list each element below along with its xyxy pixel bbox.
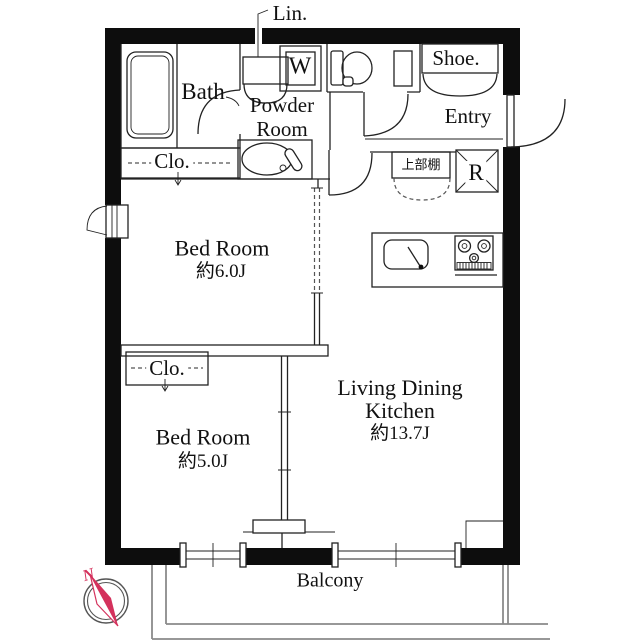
shelf-door-left [394,178,422,200]
shoe-door-right [460,74,497,96]
shelf-door-right [422,178,450,200]
bedroom1-label: Bed Room [175,236,270,259]
toilet-door-arc [364,94,408,136]
hall-door-arc [329,153,372,195]
bedroom2-corner-wall [253,520,305,533]
counter-outline [372,233,503,287]
wall-left-upper [105,28,121,205]
stove-burner-3-center [472,256,476,260]
floor-plan: Lin. Bath Powder Room W Shoe. Entry 上部棚 … [0,0,640,640]
kitchen-counter [372,233,503,287]
stove-grill-hatch [460,263,487,270]
window1-cap-left [180,543,186,567]
bottom-windows [180,521,503,567]
toilet-room [327,44,420,136]
bedroom1-bottom-wall [121,345,328,356]
ldk-label: Living Dining Kitchen [315,376,485,422]
stove-burner-1 [459,240,471,252]
bath-label: Bath [181,80,224,104]
stove-burner-2 [478,240,490,252]
balcony-right-rail [503,565,508,624]
bedroom1-size: 約6.0J [196,262,246,282]
vanity-counter [238,140,312,179]
washer-label: W [289,54,312,79]
wall-bottom-middle [243,548,335,565]
wall-right-upper [503,28,520,95]
entry-label: Entry [445,105,492,127]
leader-wall-slot [255,28,262,45]
stove-burner-1-center [462,244,467,249]
sink-faucet-head [419,265,424,270]
bedroom2-label: Bed Room [156,425,251,448]
linen-label: Lin. [273,2,307,24]
bedroom1-window-swing [87,206,107,235]
wall-top [105,28,520,44]
sliding-door-2-ticks [278,356,291,470]
sink-faucet [408,247,420,266]
bathtub-inner [131,56,169,134]
sliding-door-1-track [315,188,320,293]
window2-cap-left [332,543,338,567]
window1-cap-right [240,543,246,567]
bedroom-2 [253,356,305,548]
stove-burner-3 [470,254,479,263]
toilet-tank [331,51,343,85]
ldk-corner-step [466,521,503,548]
balcony-left-rail [152,565,166,639]
balcony-label: Balcony [297,571,364,592]
stove-grill [457,263,491,270]
balcony-bottom-rail [152,624,550,639]
closet-upper-label: Clo. [151,150,193,172]
toilet-seat-control [343,77,353,86]
closet-lower-label: Clo. [146,357,188,379]
bedroom1-right-lower [315,293,320,345]
toilet-cabinet [394,51,412,86]
bathtub-outer [127,52,173,138]
wall-right-lower [503,147,520,565]
vanity-drain [280,165,286,171]
hall-ldk-door [329,150,372,195]
sliding-door-1-ticks [311,188,323,293]
bedroom2-size: 約5.0J [178,452,228,472]
shoe-door-left [423,74,460,96]
window2-glass [338,551,455,559]
stove-burner-2-center [482,244,487,249]
entrance-door-arc [511,99,565,147]
wall-bottom-left [105,548,183,565]
linen-box [243,57,288,84]
upper-shelf-label: 上部棚 [401,158,440,172]
window2-cap-right [455,543,461,567]
shoe-label: Shoe. [432,47,479,69]
refrigerator-label: R [465,161,486,185]
powder-room-label: Powder Room [227,93,337,141]
entrance-door-leaf [507,95,514,147]
sliding-door-2-track [282,356,288,520]
ldk-size: 約13.7J [370,424,430,444]
wall-left-lower [105,238,121,565]
wall-bottom-right [458,548,520,565]
